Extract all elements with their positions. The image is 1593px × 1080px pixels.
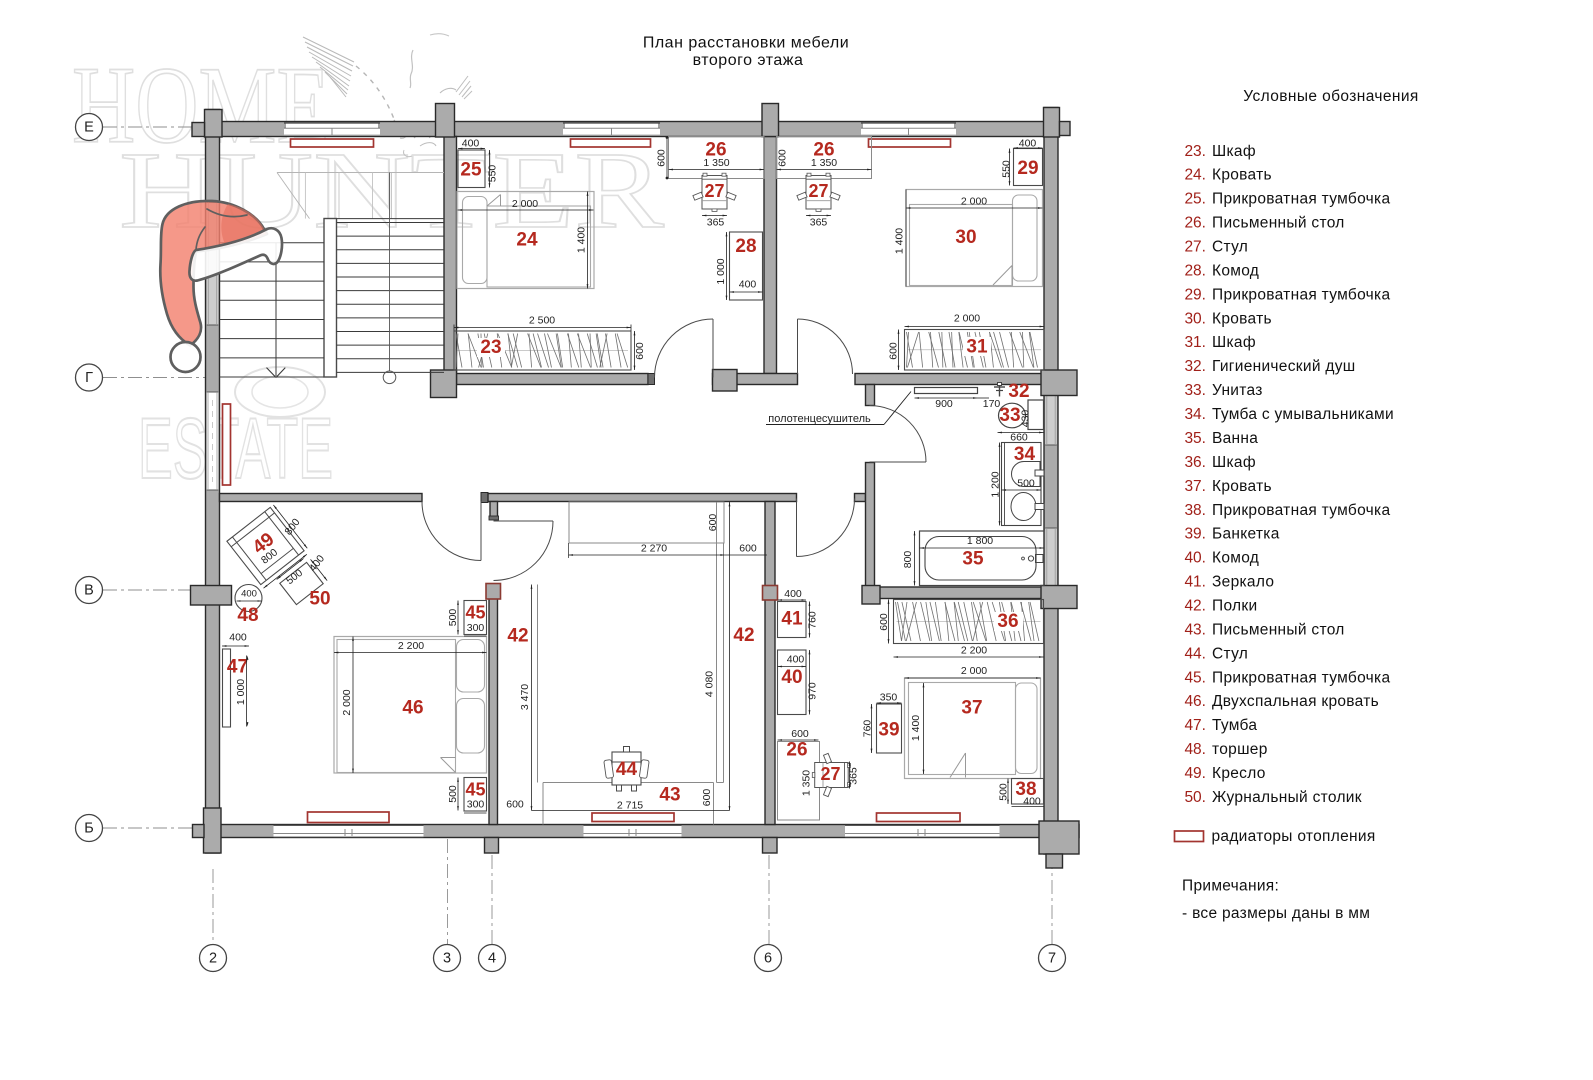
- svg-text:24: 24: [516, 230, 538, 251]
- svg-text:36.: 36.: [1184, 454, 1206, 471]
- svg-text:600: 600: [707, 514, 719, 532]
- svg-text:Письменный стол: Письменный стол: [1212, 215, 1345, 232]
- svg-text:Прикроватная тумбочка: Прикроватная тумбочка: [1212, 502, 1390, 519]
- svg-text:2 000: 2 000: [341, 689, 353, 715]
- svg-text:900: 900: [935, 398, 953, 410]
- svg-text:Е: Е: [84, 120, 94, 136]
- svg-text:970: 970: [807, 682, 819, 700]
- svg-text:34: 34: [1014, 444, 1036, 465]
- svg-text:41: 41: [781, 609, 803, 630]
- svg-text:29: 29: [1017, 158, 1038, 179]
- svg-text:26.: 26.: [1184, 215, 1206, 232]
- svg-text:45.: 45.: [1184, 669, 1206, 686]
- svg-text:33: 33: [999, 405, 1020, 426]
- svg-text:35: 35: [962, 549, 984, 570]
- svg-text:350: 350: [880, 692, 898, 704]
- svg-text:38.: 38.: [1184, 502, 1206, 519]
- svg-text:43.: 43.: [1184, 621, 1206, 638]
- svg-text:47: 47: [227, 657, 248, 678]
- svg-text:48: 48: [237, 605, 258, 626]
- svg-text:7: 7: [1048, 951, 1056, 967]
- svg-text:400: 400: [784, 588, 802, 600]
- svg-text:Прикроватная тумбочка: Прикроватная тумбочка: [1212, 191, 1390, 208]
- svg-text:30.: 30.: [1184, 310, 1206, 327]
- svg-text:42: 42: [507, 626, 528, 647]
- svg-text:600: 600: [791, 728, 809, 740]
- svg-text:Кресло: Кресло: [1212, 765, 1266, 782]
- svg-text:43: 43: [659, 785, 680, 806]
- svg-text:Тумба: Тумба: [1212, 717, 1257, 734]
- svg-text:400: 400: [787, 654, 805, 666]
- svg-text:39: 39: [878, 720, 899, 741]
- svg-text:48.: 48.: [1184, 741, 1206, 758]
- svg-text:600: 600: [888, 342, 900, 360]
- svg-text:800: 800: [902, 551, 914, 569]
- svg-text:28: 28: [735, 236, 756, 257]
- svg-text:600: 600: [777, 149, 789, 167]
- svg-text:2 000: 2 000: [954, 313, 980, 325]
- svg-text:365: 365: [810, 217, 828, 229]
- svg-text:Стул: Стул: [1212, 239, 1248, 256]
- svg-text:40.: 40.: [1184, 550, 1206, 567]
- svg-text:30: 30: [955, 227, 976, 248]
- svg-text:31.: 31.: [1184, 334, 1206, 351]
- svg-text:25: 25: [460, 160, 482, 181]
- svg-text:400: 400: [229, 632, 247, 644]
- svg-text:44: 44: [616, 759, 638, 780]
- svg-text:ESTATE: ESTATE: [138, 401, 333, 497]
- svg-text:4 080: 4 080: [704, 671, 716, 697]
- svg-text:660: 660: [1010, 432, 1028, 444]
- svg-text:500: 500: [447, 785, 459, 803]
- svg-text:37.: 37.: [1184, 478, 1206, 495]
- svg-text:40: 40: [781, 667, 802, 688]
- svg-text:32.: 32.: [1184, 358, 1206, 375]
- svg-text:28.: 28.: [1184, 262, 1206, 279]
- svg-text:Прикроватная тумбочка: Прикроватная тумбочка: [1212, 286, 1390, 303]
- svg-text:2 715: 2 715: [617, 800, 643, 812]
- svg-text:Ванна: Ванна: [1212, 430, 1258, 447]
- svg-text:1 800: 1 800: [967, 535, 993, 547]
- svg-text:35.: 35.: [1184, 430, 1206, 447]
- svg-text:46.: 46.: [1184, 693, 1206, 710]
- svg-text:23: 23: [480, 337, 501, 358]
- svg-text:полотенцесушитель: полотенцесушитель: [768, 413, 871, 425]
- svg-text:600: 600: [656, 149, 668, 167]
- svg-text:2 200: 2 200: [398, 640, 424, 652]
- svg-text:47.: 47.: [1184, 717, 1206, 734]
- svg-text:550: 550: [487, 165, 499, 183]
- svg-text:25.: 25.: [1184, 191, 1206, 208]
- svg-text:430: 430: [1020, 410, 1032, 428]
- svg-text:33.: 33.: [1184, 382, 1206, 399]
- svg-text:Комод: Комод: [1212, 550, 1259, 567]
- svg-text:Зеркало: Зеркало: [1212, 574, 1274, 591]
- svg-text:50: 50: [309, 589, 330, 610]
- svg-text:Письменный стол: Письменный стол: [1212, 621, 1345, 638]
- svg-text:23.: 23.: [1184, 143, 1206, 160]
- svg-text:второго этажа: второго этажа: [693, 52, 804, 69]
- svg-text:500: 500: [447, 609, 459, 627]
- svg-text:300: 300: [467, 799, 485, 811]
- svg-text:27: 27: [808, 181, 828, 201]
- svg-text:24.: 24.: [1184, 167, 1206, 184]
- svg-text:27: 27: [704, 181, 724, 201]
- svg-text:1 400: 1 400: [894, 228, 906, 254]
- svg-text:26: 26: [786, 740, 807, 761]
- svg-text:6: 6: [764, 951, 772, 967]
- svg-text:550: 550: [1001, 160, 1013, 178]
- svg-text:600: 600: [739, 543, 757, 555]
- svg-text:36: 36: [997, 611, 1018, 632]
- svg-text:Унитаз: Унитаз: [1212, 382, 1263, 399]
- svg-text:37: 37: [961, 698, 982, 719]
- svg-text:Полки: Полки: [1212, 597, 1257, 614]
- svg-text:торшер: торшер: [1212, 741, 1268, 758]
- svg-text:27.: 27.: [1184, 239, 1206, 256]
- svg-text:Б: Б: [84, 821, 94, 837]
- svg-text:600: 600: [634, 342, 646, 360]
- svg-text:радиаторы отопления: радиаторы отопления: [1212, 828, 1376, 845]
- svg-text:4: 4: [488, 951, 496, 967]
- svg-text:Кровать: Кровать: [1212, 478, 1272, 495]
- svg-text:42.: 42.: [1184, 597, 1206, 614]
- svg-text:1 350: 1 350: [703, 157, 729, 169]
- svg-text:2 200: 2 200: [961, 645, 987, 657]
- svg-text:50.: 50.: [1184, 789, 1206, 806]
- svg-text:44.: 44.: [1184, 645, 1206, 662]
- svg-text:1 350: 1 350: [801, 770, 813, 796]
- svg-text:1 400: 1 400: [576, 227, 588, 253]
- svg-text:45: 45: [465, 603, 485, 623]
- svg-text:2 270: 2 270: [641, 543, 667, 555]
- svg-text:400: 400: [739, 279, 757, 291]
- svg-text:Примечания:: Примечания:: [1182, 878, 1279, 895]
- svg-text:Шкаф: Шкаф: [1212, 143, 1256, 160]
- svg-text:Комод: Комод: [1212, 262, 1259, 279]
- svg-text:Прикроватная тумбочка: Прикроватная тумбочка: [1212, 669, 1390, 686]
- svg-text:170: 170: [983, 398, 1001, 410]
- svg-text:Тумба с умывальниками: Тумба с умывальниками: [1212, 406, 1394, 423]
- svg-text:2 000: 2 000: [961, 196, 987, 208]
- svg-text:Гигиенический душ: Гигиенический душ: [1212, 358, 1356, 375]
- svg-text:27: 27: [820, 764, 840, 784]
- svg-text:32: 32: [1008, 381, 1029, 402]
- svg-text:3: 3: [443, 951, 451, 967]
- svg-text:Кровать: Кровать: [1212, 167, 1272, 184]
- svg-text:42: 42: [733, 625, 754, 646]
- svg-text:Двухспальная кровать: Двухспальная кровать: [1212, 693, 1379, 710]
- svg-text:400: 400: [241, 589, 257, 600]
- svg-text:Условные обозначения: Условные обозначения: [1243, 88, 1418, 105]
- svg-text:49.: 49.: [1184, 765, 1206, 782]
- svg-text:Шкаф: Шкаф: [1212, 334, 1256, 351]
- svg-text:Журнальный столик: Журнальный столик: [1212, 789, 1362, 806]
- svg-text:41.: 41.: [1184, 574, 1206, 591]
- svg-text:34.: 34.: [1184, 406, 1206, 423]
- svg-text:500: 500: [1017, 478, 1035, 490]
- svg-text:46: 46: [402, 698, 423, 719]
- svg-text:В: В: [84, 583, 94, 599]
- svg-text:300: 300: [467, 622, 485, 634]
- svg-text:Банкетка: Банкетка: [1212, 526, 1280, 543]
- svg-text:29.: 29.: [1184, 286, 1206, 303]
- svg-text:600: 600: [701, 789, 713, 807]
- svg-text:39.: 39.: [1184, 526, 1206, 543]
- svg-text:1 350: 1 350: [811, 157, 837, 169]
- svg-text:Стул: Стул: [1212, 645, 1248, 662]
- svg-text:2 000: 2 000: [961, 665, 987, 677]
- svg-text:400: 400: [1023, 796, 1041, 808]
- svg-text:- все размеры даны в мм: - все размеры даны в мм: [1182, 905, 1370, 922]
- svg-text:1 400: 1 400: [910, 715, 922, 741]
- svg-text:1 000: 1 000: [715, 258, 727, 284]
- svg-text:2 000: 2 000: [512, 198, 538, 210]
- svg-text:760: 760: [807, 611, 819, 629]
- svg-text:2: 2: [209, 951, 217, 967]
- svg-text:3 470: 3 470: [519, 684, 531, 710]
- svg-text:365: 365: [707, 217, 725, 229]
- svg-text:400: 400: [462, 138, 480, 150]
- svg-text:Г: Г: [85, 370, 93, 386]
- svg-text:31: 31: [966, 337, 988, 358]
- svg-text:45: 45: [465, 780, 485, 800]
- svg-text:600: 600: [506, 799, 524, 811]
- svg-text:1 000: 1 000: [235, 679, 247, 705]
- svg-text:Кровать: Кровать: [1212, 310, 1272, 327]
- svg-text:Шкаф: Шкаф: [1212, 454, 1256, 471]
- svg-text:План расстановки мебели: План расстановки мебели: [643, 35, 849, 52]
- svg-text:2 500: 2 500: [529, 315, 555, 327]
